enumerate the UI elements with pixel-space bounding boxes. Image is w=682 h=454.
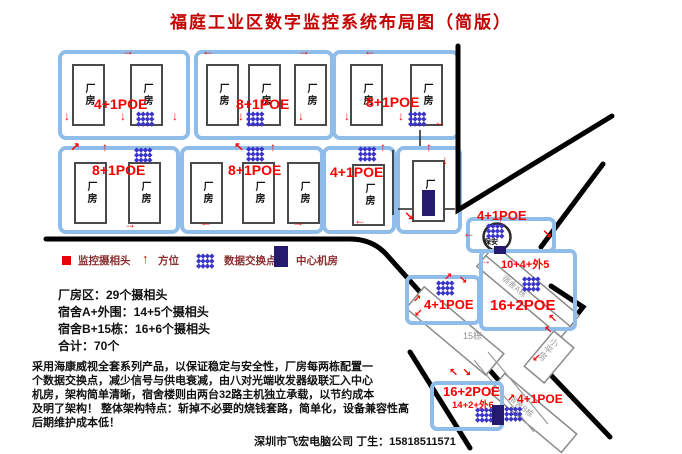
direction-arrow-icon: → [298, 45, 310, 57]
central-room-marker [422, 190, 435, 216]
poe-label: 8+1POE [366, 94, 419, 110]
direction-arrow-icon: ← [463, 227, 475, 239]
poe-label: 4+1POE [424, 297, 474, 312]
direction-arrow-icon: ↑ [380, 141, 386, 153]
direction-arrow-icon: ← [364, 45, 376, 57]
central-room-legend-icon [274, 246, 288, 267]
direction-arrow-icon: → [481, 257, 491, 267]
data-switch-icon: ◆◆◆◆◆◆◆◆◆◆◆◆ [246, 147, 264, 162]
direction-arrow-icon: ↖ [449, 368, 458, 379]
block15-label: 15栋 [463, 330, 482, 341]
direction-arrow-icon: → [292, 216, 304, 228]
direction-arrow-icon: ↘ [542, 228, 552, 240]
factory-building-label: 厂房 [296, 181, 311, 205]
direction-arrow-icon: → [122, 45, 134, 57]
direction-arrow-icon: ← [434, 116, 446, 128]
direction-arrow-icon: ↓ [442, 154, 448, 166]
factory-building-label: 厂房 [251, 181, 266, 205]
direction-arrow-icon: ↓ [344, 110, 350, 122]
data-switch-icon: ◆◆◆◆◆◆◆◆◆◆◆◆ [136, 112, 154, 127]
data-switch-icon: ◆◆◆◆◆◆◆◆◆◆◆◆ [246, 112, 264, 127]
direction-arrow-icon: ↖ [234, 141, 244, 153]
direction-arrow-icon: ↙ [414, 309, 422, 319]
direction-legend-icon: ↑ [142, 252, 149, 265]
direction-arrow-icon: ↑ [426, 141, 432, 153]
direction-arrow-icon: ↓ [172, 110, 178, 122]
direction-arrow-icon: ↖ [548, 314, 557, 325]
recorder-marker [492, 405, 504, 425]
direction-arrow-icon: → [124, 218, 136, 230]
data-switch-icon: ◆◆◆◆◆◆◆◆◆◆◆◆ [358, 147, 376, 162]
direction-arrow-icon: ↑ [102, 141, 108, 153]
layout-diagram: 宿舍A栋 15栋 小平房 宿舍B栋 福庭工业区数字监控系统布局图（简版） 厂房 … [0, 0, 682, 454]
factory-building-label: 厂房 [83, 181, 98, 205]
data-switch-icon: ◆◆◆◆◆◆◆◆◆◆◆◆ [408, 112, 426, 127]
direction-arrow-icon: ↘ [404, 210, 414, 222]
data-switch-icon: ◆◆◆◆◆◆◆◆◆◆◆◆ [504, 407, 522, 422]
direction-arrow-icon: ↖ [544, 326, 552, 336]
direction-arrow-icon: ↓ [298, 110, 304, 122]
direction-arrow-icon: ↗ [507, 394, 515, 404]
factory-building-label: 厂房 [303, 83, 318, 107]
factory-building: 厂房 [72, 64, 105, 126]
data-switch-icon: ◆◆◆◆◆◆◆◆◆◆◆◆ [436, 281, 454, 296]
factory-building-label: 厂房 [361, 183, 376, 207]
recorder-marker [494, 246, 506, 254]
data-switch-icon: ◆◆◆◆◆◆◆◆◆◆◆◆ [475, 408, 493, 423]
factory-building-label: 厂房 [137, 181, 152, 205]
poe-label: 16+2POE [490, 297, 555, 314]
poe-label: 4+1POE [330, 164, 383, 180]
direction-arrow-icon: ↗ [444, 273, 452, 283]
poe-label: 8+1POE [92, 162, 145, 178]
direction-arrow-icon: ↓ [238, 110, 244, 122]
factory-building-label: 厂房 [199, 181, 214, 205]
direction-arrow-icon: ↑ [270, 141, 276, 153]
direction-arrow-icon: ↓ [64, 110, 70, 122]
direction-arrow-icon: ← [200, 216, 212, 228]
direction-arrow-icon: ← [354, 214, 366, 226]
direction-arrow-icon: ↑ [498, 215, 503, 224]
data-switch-icon: ◆◆◆◆◆◆◆◆◆◆◆◆ [522, 277, 540, 292]
data-switch-legend-icon: ◆◆◆◆◆◆◆◆◆◆◆◆ [196, 254, 214, 269]
direction-arrow-icon: ↗ [413, 295, 421, 305]
data-switch-icon: ◆◆◆◆◆◆◆◆◆◆◆◆ [134, 148, 152, 163]
factory-building-label: 厂房 [215, 83, 230, 107]
camera-count-label: 10+4+外5 [501, 256, 549, 272]
factory-building: 厂房 [206, 64, 239, 126]
poe-label: 4+1POE [517, 392, 563, 406]
factory-building-label: 厂房 [419, 83, 434, 107]
direction-arrow-icon: ↓ [398, 110, 404, 122]
poe-label: 8+1POE [228, 162, 281, 178]
direction-arrow-icon: ↓ [120, 110, 126, 122]
direction-arrow-icon: ↗ [70, 141, 80, 153]
direction-arrow-icon: ↘ [459, 276, 467, 286]
direction-arrow-icon: ← [202, 45, 214, 57]
direction-arrow-icon: ↙ [532, 354, 540, 364]
direction-arrow-icon: ↘ [462, 368, 471, 379]
